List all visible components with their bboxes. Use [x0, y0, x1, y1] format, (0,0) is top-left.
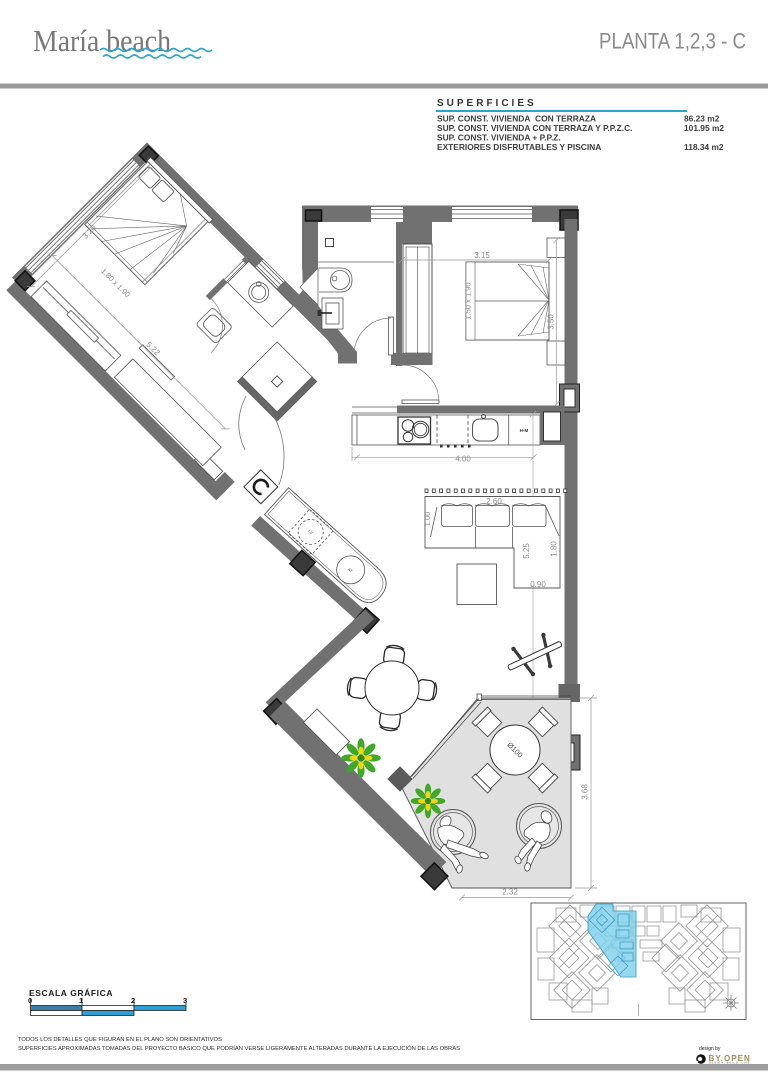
- svg-text:3.50: 3.50: [547, 314, 556, 330]
- svg-text:PLANTA 1,2,3 - C: PLANTA 1,2,3 - C: [599, 29, 746, 54]
- svg-text:TODOS LOS DETALLES QUE FIGURAN: TODOS LOS DETALLES QUE FIGURAN EN EL PLA…: [18, 1037, 222, 1043]
- svg-text:1.00: 1.00: [423, 512, 432, 527]
- svg-text:0.90: 0.90: [530, 580, 546, 589]
- svg-text:1: 1: [79, 996, 83, 1005]
- svg-text:H-M: H-M: [520, 428, 529, 433]
- svg-text:5.25: 5.25: [522, 543, 531, 559]
- svg-text:4.00: 4.00: [455, 455, 471, 464]
- svg-text:SUP. CONST. VIVIENDA CON TERR: SUP. CONST. VIVIENDA CON TERRAZA: [437, 114, 596, 124]
- svg-text:3: 3: [183, 996, 187, 1005]
- svg-text:SUPERFICIES: SUPERFICIES: [437, 98, 537, 109]
- svg-text:2.60: 2.60: [486, 497, 502, 506]
- svg-text:María beach: María beach: [33, 23, 171, 58]
- svg-text:2.32: 2.32: [502, 888, 518, 897]
- svg-text:SUPERFICIES APROXIMADAS TOMADA: SUPERFICIES APROXIMADAS TOMADAS DEL PROY…: [18, 1045, 460, 1052]
- svg-text:0: 0: [28, 996, 32, 1005]
- svg-text:3.15: 3.15: [474, 251, 490, 260]
- svg-text:DESIGN. BUILD. LIVE.: DESIGN. BUILD. LIVE.: [709, 1060, 752, 1064]
- svg-text:SUP. CONST. VIVIENDA + P.P.Z.: SUP. CONST. VIVIENDA + P.P.Z.: [437, 133, 561, 143]
- svg-text:2: 2: [131, 996, 135, 1005]
- svg-text:1.50 x 1.90: 1.50 x 1.90: [464, 282, 473, 319]
- svg-text:ESCALA GRÁFICA: ESCALA GRÁFICA: [29, 988, 113, 998]
- svg-text:SUP. CONST. VIVIENDA CON TERRA: SUP. CONST. VIVIENDA CON TERRAZA Y P.P.Z…: [437, 123, 632, 133]
- svg-text:3.68: 3.68: [581, 784, 590, 800]
- svg-text:EXTERIORES DISFRUTABLES Y PISC: EXTERIORES DISFRUTABLES Y PISCINA: [437, 142, 601, 152]
- svg-text:1.80: 1.80: [550, 541, 559, 557]
- svg-text:design by: design by: [699, 1046, 721, 1052]
- svg-text:118.34 m2: 118.34 m2: [684, 142, 724, 152]
- svg-text:86.23 m2: 86.23 m2: [684, 114, 720, 124]
- svg-text:101.95 m2: 101.95 m2: [684, 123, 724, 133]
